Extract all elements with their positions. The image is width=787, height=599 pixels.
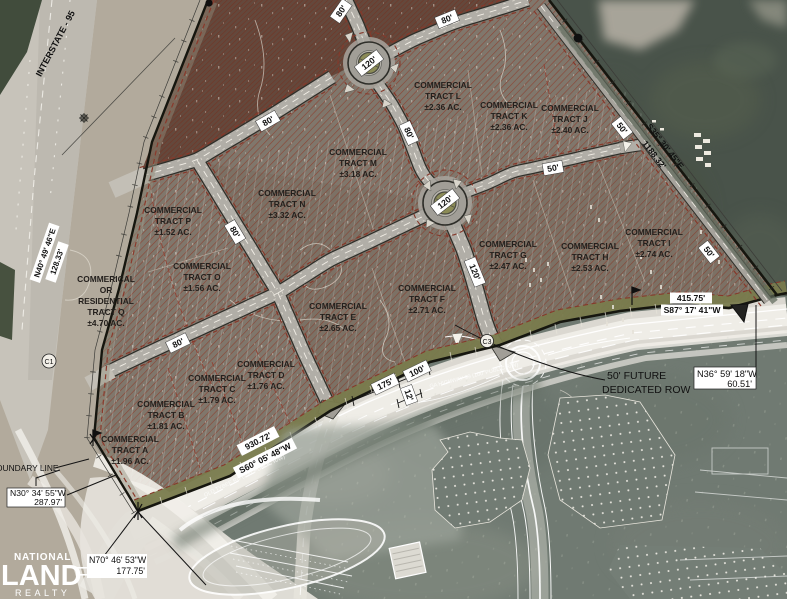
svg-text:TRACT E: TRACT E <box>320 312 357 322</box>
svg-text:±3.32 AC.: ±3.32 AC. <box>268 210 305 220</box>
svg-text:C3: C3 <box>483 339 492 346</box>
svg-text:±1.96 AC.: ±1.96 AC. <box>111 456 148 466</box>
svg-text:±2.40 AC.: ±2.40 AC. <box>551 125 588 135</box>
svg-text:50' FUTURE: 50' FUTURE <box>607 370 666 382</box>
svg-text:COMMERCIAL: COMMERCIAL <box>625 227 683 237</box>
svg-text:TRACT H: TRACT H <box>572 252 609 262</box>
svg-text:COMMERCIAL: COMMERCIAL <box>258 188 316 198</box>
svg-text:COMMERCIAL: COMMERCIAL <box>237 359 295 369</box>
svg-text:REALTY: REALTY <box>15 588 70 598</box>
svg-text:COMMERICAL: COMMERICAL <box>77 274 135 284</box>
svg-text:COMMERCIAL: COMMERCIAL <box>541 103 599 113</box>
svg-text:±2.53 AC.: ±2.53 AC. <box>571 263 608 273</box>
svg-text:±1.76 AC.: ±1.76 AC. <box>247 381 284 391</box>
svg-text:177.75': 177.75' <box>116 566 145 576</box>
svg-text:COMMERCIAL: COMMERCIAL <box>173 261 231 271</box>
svg-text:RESIDENTIAL: RESIDENTIAL <box>78 296 134 306</box>
svg-text:±2.74 AC.: ±2.74 AC. <box>635 249 672 259</box>
svg-text:COMMERCIAL: COMMERCIAL <box>480 100 538 110</box>
svg-text:TRACT I: TRACT I <box>637 238 670 248</box>
svg-text:±2.65 AC.: ±2.65 AC. <box>319 323 356 333</box>
svg-text:C1: C1 <box>45 359 54 366</box>
svg-text:OR: OR <box>100 285 113 295</box>
svg-text:COMMERCIAL: COMMERCIAL <box>329 147 387 157</box>
svg-text:±4.70 AC.: ±4.70 AC. <box>87 318 124 328</box>
svg-text:COMMERCIAL: COMMERCIAL <box>101 434 159 444</box>
svg-text:COMMERCIAL: COMMERCIAL <box>309 301 367 311</box>
svg-text:±1.52 AC.: ±1.52 AC. <box>154 227 191 237</box>
svg-text:±2.47 AC.: ±2.47 AC. <box>489 261 526 271</box>
svg-text:±3.18 AC.: ±3.18 AC. <box>339 169 376 179</box>
svg-text:TRACT B: TRACT B <box>148 410 185 420</box>
svg-text:COMMERCIAL: COMMERCIAL <box>144 205 202 215</box>
svg-text:OUNDARY LINE: OUNDARY LINE <box>0 463 59 473</box>
svg-text:415.75': 415.75' <box>677 293 705 303</box>
svg-text:COMMERCIAL: COMMERCIAL <box>561 241 619 251</box>
svg-text:TRACT M: TRACT M <box>339 158 377 168</box>
svg-text:TRACT D: TRACT D <box>248 370 285 380</box>
svg-text:TRACT L: TRACT L <box>425 91 461 101</box>
svg-text:COMMERCIAL: COMMERCIAL <box>137 399 195 409</box>
svg-text:TRACT G: TRACT G <box>489 250 526 260</box>
svg-text:N36° 59' 18"W: N36° 59' 18"W <box>697 369 757 379</box>
svg-text:TRACT O: TRACT O <box>183 272 221 282</box>
svg-text:50': 50' <box>546 162 559 174</box>
svg-text:COMMERCIAL: COMMERCIAL <box>398 283 456 293</box>
svg-text:COMMERCIAL: COMMERCIAL <box>414 80 472 90</box>
svg-text:COMMERCIAL: COMMERCIAL <box>479 239 537 249</box>
svg-text:±2.36 AC.: ±2.36 AC. <box>490 122 527 132</box>
svg-text:S87° 17' 41"W: S87° 17' 41"W <box>664 305 722 315</box>
svg-text:TRACT F: TRACT F <box>409 294 445 304</box>
svg-text:60.51': 60.51' <box>727 379 752 389</box>
svg-text:N70° 46' 53"W: N70° 46' 53"W <box>89 555 147 565</box>
svg-text:TRACT P: TRACT P <box>155 216 192 226</box>
svg-text:TRACT C: TRACT C <box>199 384 236 394</box>
svg-text:TRACT J: TRACT J <box>552 114 588 124</box>
svg-text:287.97': 287.97' <box>34 497 62 507</box>
svg-text:TRACT N: TRACT N <box>269 199 306 209</box>
svg-text:TRACT A: TRACT A <box>112 445 148 455</box>
svg-text:TRACT K: TRACT K <box>491 111 528 121</box>
svg-text:±1.81 AC.: ±1.81 AC. <box>147 421 184 431</box>
svg-text:±1.56 AC.: ±1.56 AC. <box>183 283 220 293</box>
svg-text:±2.36 AC.: ±2.36 AC. <box>424 102 461 112</box>
svg-text:±2.71 AC.: ±2.71 AC. <box>408 305 445 315</box>
svg-text:COMMERCIAL: COMMERCIAL <box>188 373 246 383</box>
svg-text:DEDICATED ROW: DEDICATED ROW <box>602 384 691 396</box>
svg-text:TRACT Q: TRACT Q <box>87 307 125 317</box>
svg-text:±1.79 AC.: ±1.79 AC. <box>198 395 235 405</box>
